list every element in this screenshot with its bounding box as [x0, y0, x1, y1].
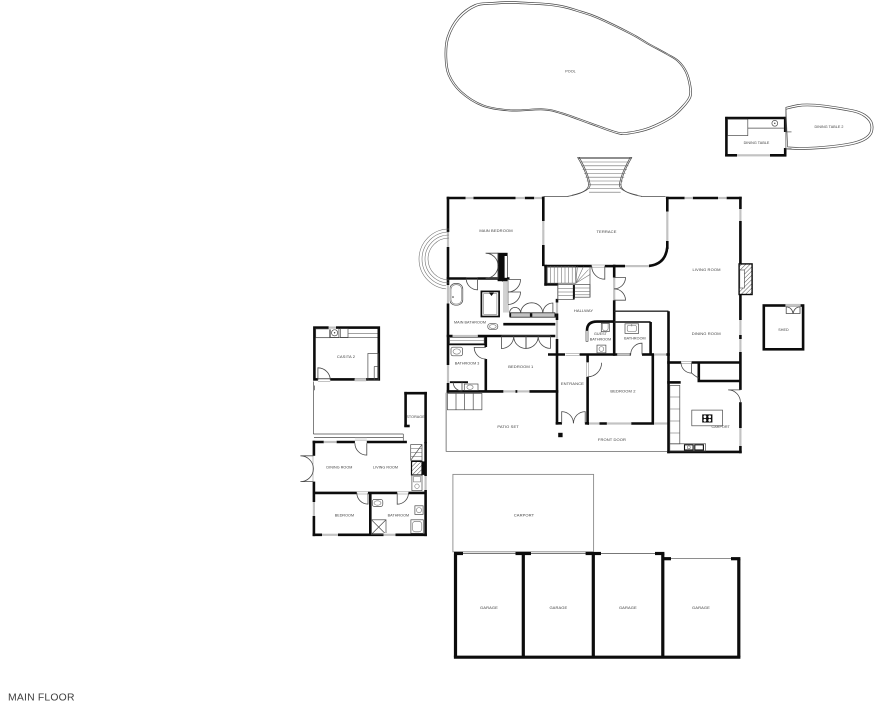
- svg-text:FRONT DOOR: FRONT DOOR: [598, 437, 626, 442]
- svg-text:BEDROOM: BEDROOM: [335, 514, 354, 518]
- svg-text:BATHROOM 3: BATHROOM 3: [455, 361, 480, 365]
- svg-text:DINING TABLE 2: DINING TABLE 2: [814, 125, 843, 129]
- svg-text:BEDROOM 2: BEDROOM 2: [610, 389, 636, 394]
- svg-text:LIVING ROOM: LIVING ROOM: [373, 466, 398, 470]
- svg-text:CARPORT: CARPORT: [712, 425, 731, 429]
- svg-text:CASITA 2: CASITA 2: [337, 354, 356, 359]
- svg-text:GARAGE: GARAGE: [549, 605, 567, 610]
- svg-text:GARAGE: GARAGE: [692, 605, 710, 610]
- svg-text:SHED: SHED: [778, 328, 789, 332]
- svg-text:BATHROOM: BATHROOM: [388, 514, 409, 518]
- svg-text:STORAGE: STORAGE: [406, 415, 425, 419]
- svg-text:DINING TABLE: DINING TABLE: [744, 141, 770, 145]
- svg-text:DINING ROOM: DINING ROOM: [326, 466, 352, 470]
- svg-text:MAIN BATHROOM: MAIN BATHROOM: [454, 320, 486, 324]
- svg-text:TERRACE: TERRACE: [596, 229, 616, 234]
- svg-text:GARAGE: GARAGE: [619, 605, 637, 610]
- svg-text:HALLWAY: HALLWAY: [574, 308, 593, 313]
- svg-text:PATIO SET: PATIO SET: [497, 424, 519, 429]
- svg-text:POOL: POOL: [565, 70, 575, 74]
- svg-text:GARAGE: GARAGE: [480, 605, 498, 610]
- svg-text:DINING ROOM: DINING ROOM: [692, 331, 722, 336]
- svg-text:BATHROOM: BATHROOM: [590, 338, 611, 342]
- svg-text:MAIN FLOOR: MAIN FLOOR: [8, 693, 75, 704]
- svg-text:CARPORT: CARPORT: [514, 513, 535, 518]
- svg-text:GUEST: GUEST: [594, 332, 608, 336]
- svg-text:MAIN BEDROOM: MAIN BEDROOM: [479, 228, 513, 233]
- svg-text:ENTRANCE: ENTRANCE: [561, 381, 584, 386]
- svg-text:BATHROOM: BATHROOM: [624, 337, 645, 341]
- svg-text:LIVING ROOM: LIVING ROOM: [692, 267, 721, 272]
- svg-text:BEDROOM 1: BEDROOM 1: [508, 364, 534, 369]
